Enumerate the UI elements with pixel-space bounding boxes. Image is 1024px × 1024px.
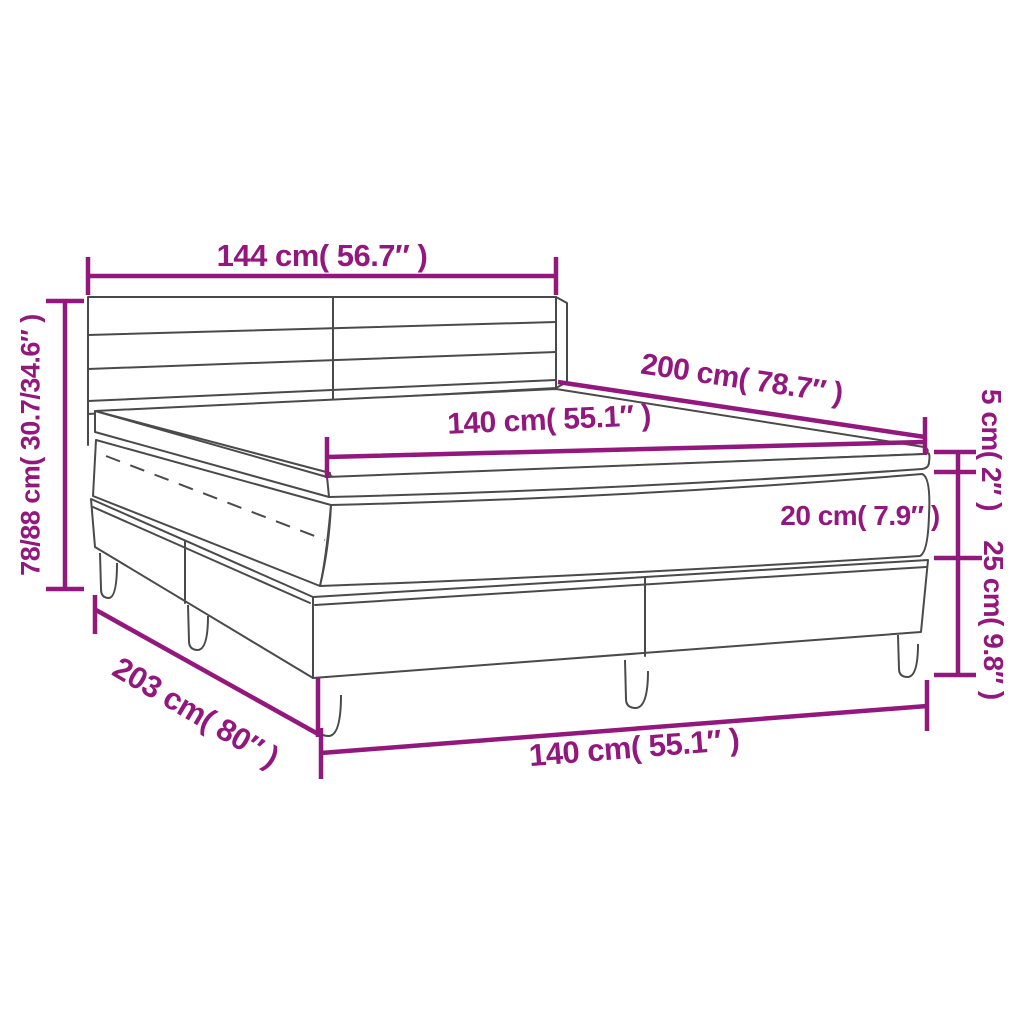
dim-right-bracket-lines: [934, 452, 982, 675]
dim-base-width-label: 140 cm( 55.1″ ): [528, 722, 741, 773]
dim-headboard-width-label: 144 cm( 56.7″ ): [217, 238, 428, 273]
bed-dimension-diagram: 144 cm( 56.7″ ) 78/88 cm( 30.7/34.6″ ) 2…: [0, 0, 1024, 1024]
bed-leg-4: [625, 660, 648, 708]
dim-overall-height-label: 78/88 cm( 30.7/34.6″ ): [15, 314, 45, 576]
dim-base-length-label: 203 cm( 80″ ): [107, 650, 285, 774]
diagram-canvas: 144 cm( 56.7″ ) 78/88 cm( 30.7/34.6″ ) 2…: [0, 0, 1024, 1024]
bed-leg-5: [898, 635, 918, 677]
dim-topper-thickness-label: 5 cm( 2″ ): [976, 389, 1007, 511]
dim-overall-height-line: [46, 301, 84, 589]
bed-leg-3: [317, 682, 341, 736]
dim-base-height-label: 25 cm( 9.8″ ): [978, 540, 1009, 699]
headboard-side-panel: [556, 297, 567, 388]
dim-base-width: 140 cm( 55.1″ ): [321, 680, 927, 779]
dim-mattress-thickness-label: 20 cm( 7.9″ ): [780, 500, 939, 531]
dim-headboard-width: 144 cm( 56.7″ ): [88, 238, 556, 295]
dim-overall-height: 78/88 cm( 30.7/34.6″ ): [15, 301, 84, 589]
